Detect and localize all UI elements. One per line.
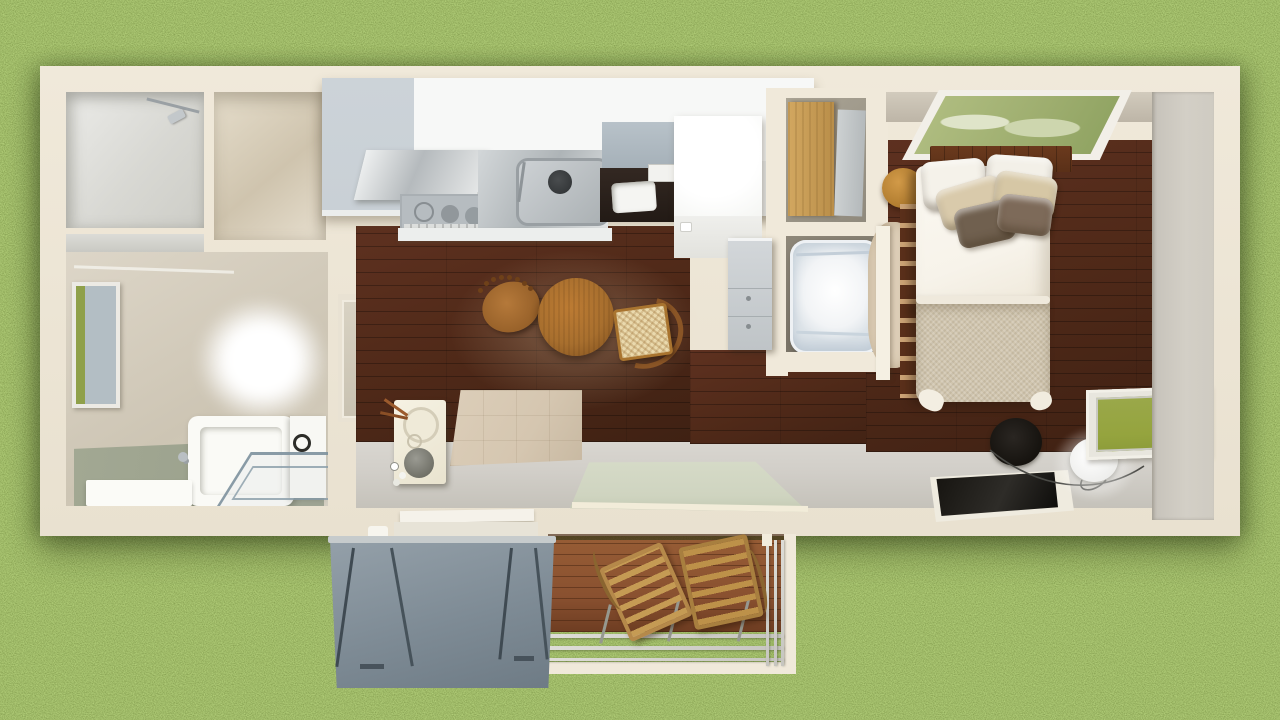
refrigerator-top (674, 116, 762, 218)
bed-side-ledge (876, 226, 890, 380)
railing-vbar-2 (774, 540, 777, 666)
railing-bar-2 (548, 646, 784, 650)
blanket-fold-edge (916, 296, 1050, 304)
awning-foot-b (514, 656, 534, 661)
desk-drawer (648, 164, 676, 182)
desk-basin (611, 181, 657, 214)
counter-front-panel (398, 228, 612, 241)
railing-frame-right (784, 534, 796, 674)
railing-bar-3 (548, 658, 784, 661)
range-hood (354, 150, 488, 200)
washer-small-dial (407, 434, 422, 449)
washer-fittings (390, 462, 399, 471)
frosted-window-glow (196, 298, 328, 422)
railing-vbar-3 (781, 540, 784, 666)
storage-room-lower-floor (66, 234, 204, 252)
cabinet-drawer-lines (728, 288, 772, 289)
pillow-brown-right (996, 193, 1054, 237)
wishbone-chair-seat (613, 302, 674, 361)
wardrobe-sliding-panel (834, 110, 866, 217)
washer-drum (404, 448, 434, 478)
cabinet-knobs (746, 296, 751, 301)
windsor-chair-spindles (478, 288, 483, 293)
vanity-knob (293, 434, 311, 452)
bedroom-east-wall-face (1152, 92, 1214, 520)
round-dining-table (538, 278, 614, 356)
bathroom-west-window (72, 282, 120, 408)
washing-machine (394, 400, 446, 484)
wardrobe (788, 102, 834, 216)
bath-bench (86, 480, 192, 506)
cooktop-burners (414, 202, 434, 222)
shower-head-icon (178, 452, 188, 462)
refrigerator-handle (680, 222, 692, 232)
nook-right-wall (864, 88, 888, 236)
gray-drawer-cabinet (728, 238, 772, 350)
railing-corner-post (762, 534, 772, 546)
floorplan-render (0, 0, 1280, 720)
bathroom-towel-rail (74, 265, 234, 274)
sink-drain (548, 170, 572, 194)
awning-foot-a (360, 664, 384, 669)
railing-bar-1 (548, 634, 784, 638)
door-threshold-lower (394, 522, 538, 536)
closet-room-floor (214, 92, 326, 240)
bed-blanket (916, 300, 1050, 402)
nook-front-wall (786, 352, 888, 372)
railing-frame-bottom (548, 662, 796, 674)
white-armchair (790, 240, 880, 354)
awning-top-edge (328, 536, 556, 543)
tile-entry (450, 390, 582, 466)
bathroom (66, 252, 328, 506)
